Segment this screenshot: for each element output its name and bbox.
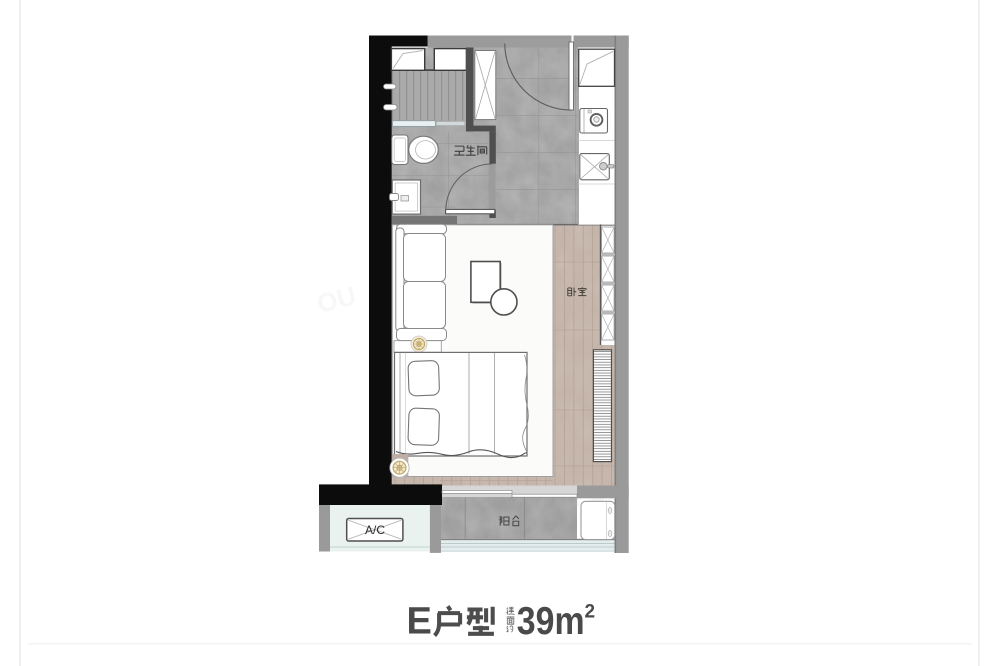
svg-text:39m: 39m	[517, 599, 585, 643]
svg-text:2: 2	[585, 602, 596, 623]
svg-text:A/C: A/C	[365, 523, 385, 537]
svg-text:E: E	[407, 601, 432, 643]
